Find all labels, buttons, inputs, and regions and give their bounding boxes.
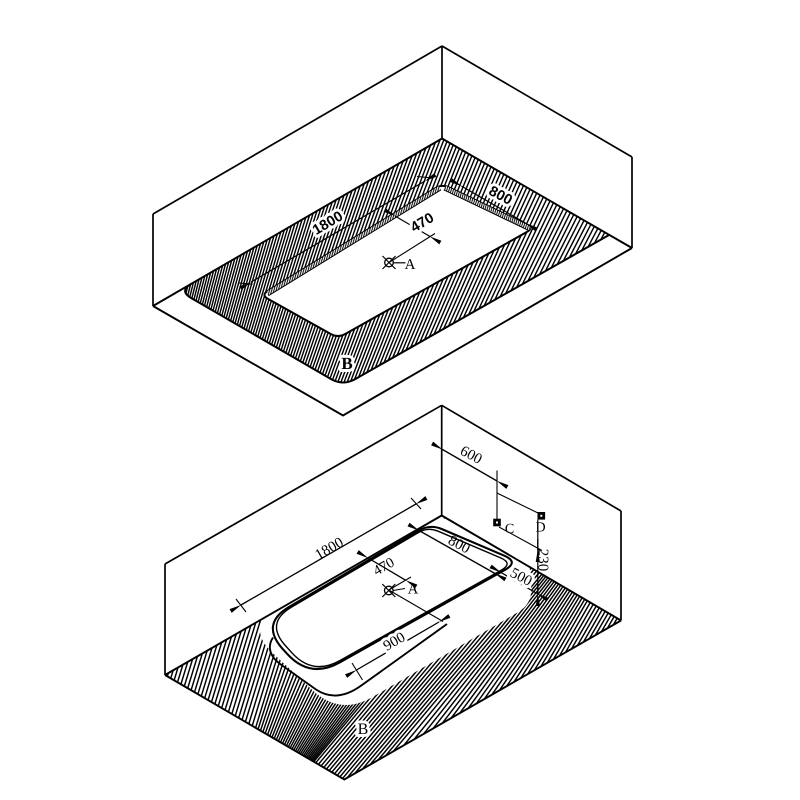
- svg-text:B: B: [341, 354, 352, 373]
- svg-text:B: B: [358, 721, 369, 738]
- svg-text:A: A: [405, 257, 416, 273]
- svg-text:D: D: [535, 521, 545, 536]
- svg-text:230: 230: [535, 549, 551, 572]
- svg-text:A: A: [408, 582, 419, 598]
